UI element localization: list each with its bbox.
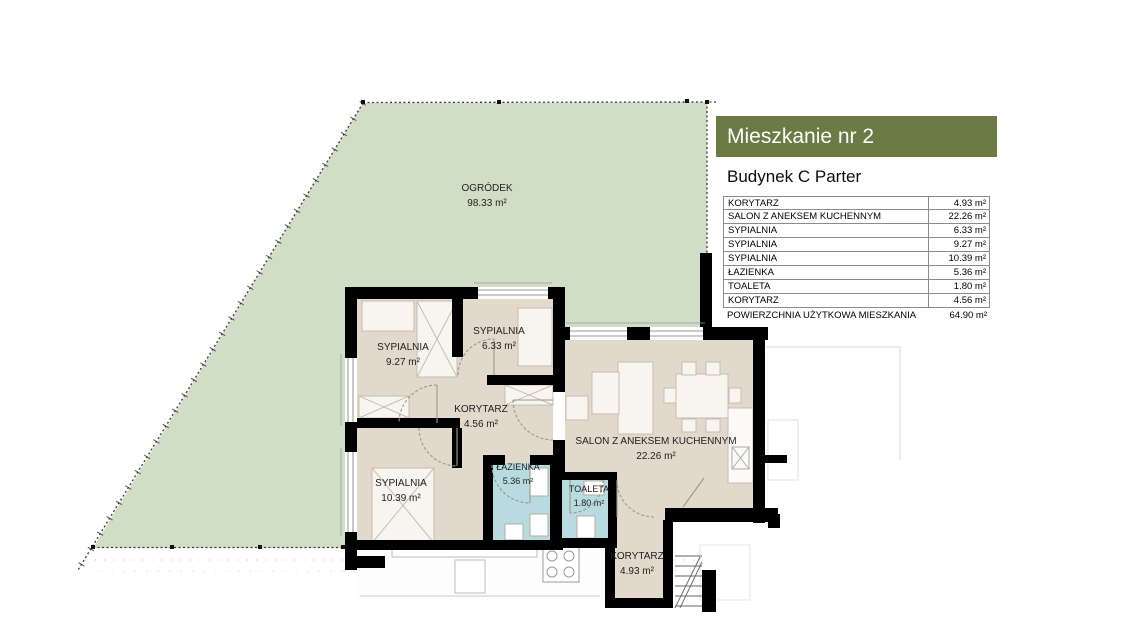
room-area: 9.27 m² (929, 238, 989, 251)
room-area: 5.36 m² (929, 266, 989, 279)
room-area: 1.80 m² (929, 280, 989, 293)
room-label-korytarz-456: KORYTARZ 4.56 m² (454, 402, 508, 432)
room-label-sypialnia-633: SYPIALNIA 6.33 m² (473, 324, 525, 354)
room-label-sypialnia-1039: SYPIALNIA 10.39 m² (375, 476, 427, 506)
room-area: 4.56 m² (929, 294, 989, 307)
area-table-row: TOALETA 1.80 m² (723, 280, 990, 294)
room-name: SYPIALNIA (724, 224, 929, 237)
room-name: KORYTARZ (724, 294, 929, 307)
area-table-summary: POWIERZCHNIA UŻYTKOWA MIESZKANIA 64.90 m… (723, 310, 990, 322)
room-name: SYPIALNIA (724, 238, 929, 251)
room-area: 10.39 m² (929, 252, 989, 265)
room-area: 4.93 m² (929, 197, 989, 209)
area-table-row: KORYTARZ 4.56 m² (723, 294, 990, 308)
room-name: KORYTARZ (724, 197, 929, 209)
area-table: KORYTARZ 4.93 m² SALON Z ANEKSEM KUCHENN… (723, 196, 990, 322)
area-table-row: ŁAZIENKA 5.36 m² (723, 266, 990, 280)
apartment-title-banner: Mieszkanie nr 2 (716, 116, 997, 157)
floorplan-page: OGRÓDEK 98.33 m² SYPIALNIA 9.27 m² SYPIA… (0, 0, 1129, 631)
apartment-title: Mieszkanie nr 2 (727, 125, 874, 148)
summary-label: POWIERZCHNIA UŻYTKOWA MIESZKANIA (723, 310, 930, 322)
area-table-row: SYPIALNIA 6.33 m² (723, 224, 990, 238)
room-name: ŁAZIENKA (724, 266, 929, 279)
room-label-salon: SALON Z ANEKSEM KUCHENNYM 22.26 m² (575, 434, 736, 464)
room-area: 22.26 m² (929, 210, 989, 223)
room-label-sypialnia-927: SYPIALNIA 9.27 m² (377, 340, 429, 370)
room-area: 6.33 m² (929, 224, 989, 237)
room-name: TOALETA (724, 280, 929, 293)
room-label-lazienka: ŁAZIENKA 5.36 m² (496, 461, 540, 488)
room-label-korytarz-493: KORYTARZ 4.93 m² (610, 549, 664, 579)
stairs (675, 556, 702, 608)
building-subtitle: Budynek C Parter (727, 167, 861, 187)
area-table-row: SALON Z ANEKSEM KUCHENNYM 22.26 m² (723, 210, 990, 224)
garden-label: OGRÓDEK 98.33 m² (461, 181, 512, 211)
area-table-row: SYPIALNIA 10.39 m² (723, 252, 990, 266)
room-name: SALON Z ANEKSEM KUCHENNYM (724, 210, 929, 223)
summary-value: 64.90 m² (930, 310, 990, 322)
room-label-toaleta: TOALETA 1.80 m² (569, 483, 609, 510)
area-table-row: KORYTARZ 4.93 m² (723, 196, 990, 210)
area-table-row: SYPIALNIA 9.27 m² (723, 238, 990, 252)
room-name: SYPIALNIA (724, 252, 929, 265)
